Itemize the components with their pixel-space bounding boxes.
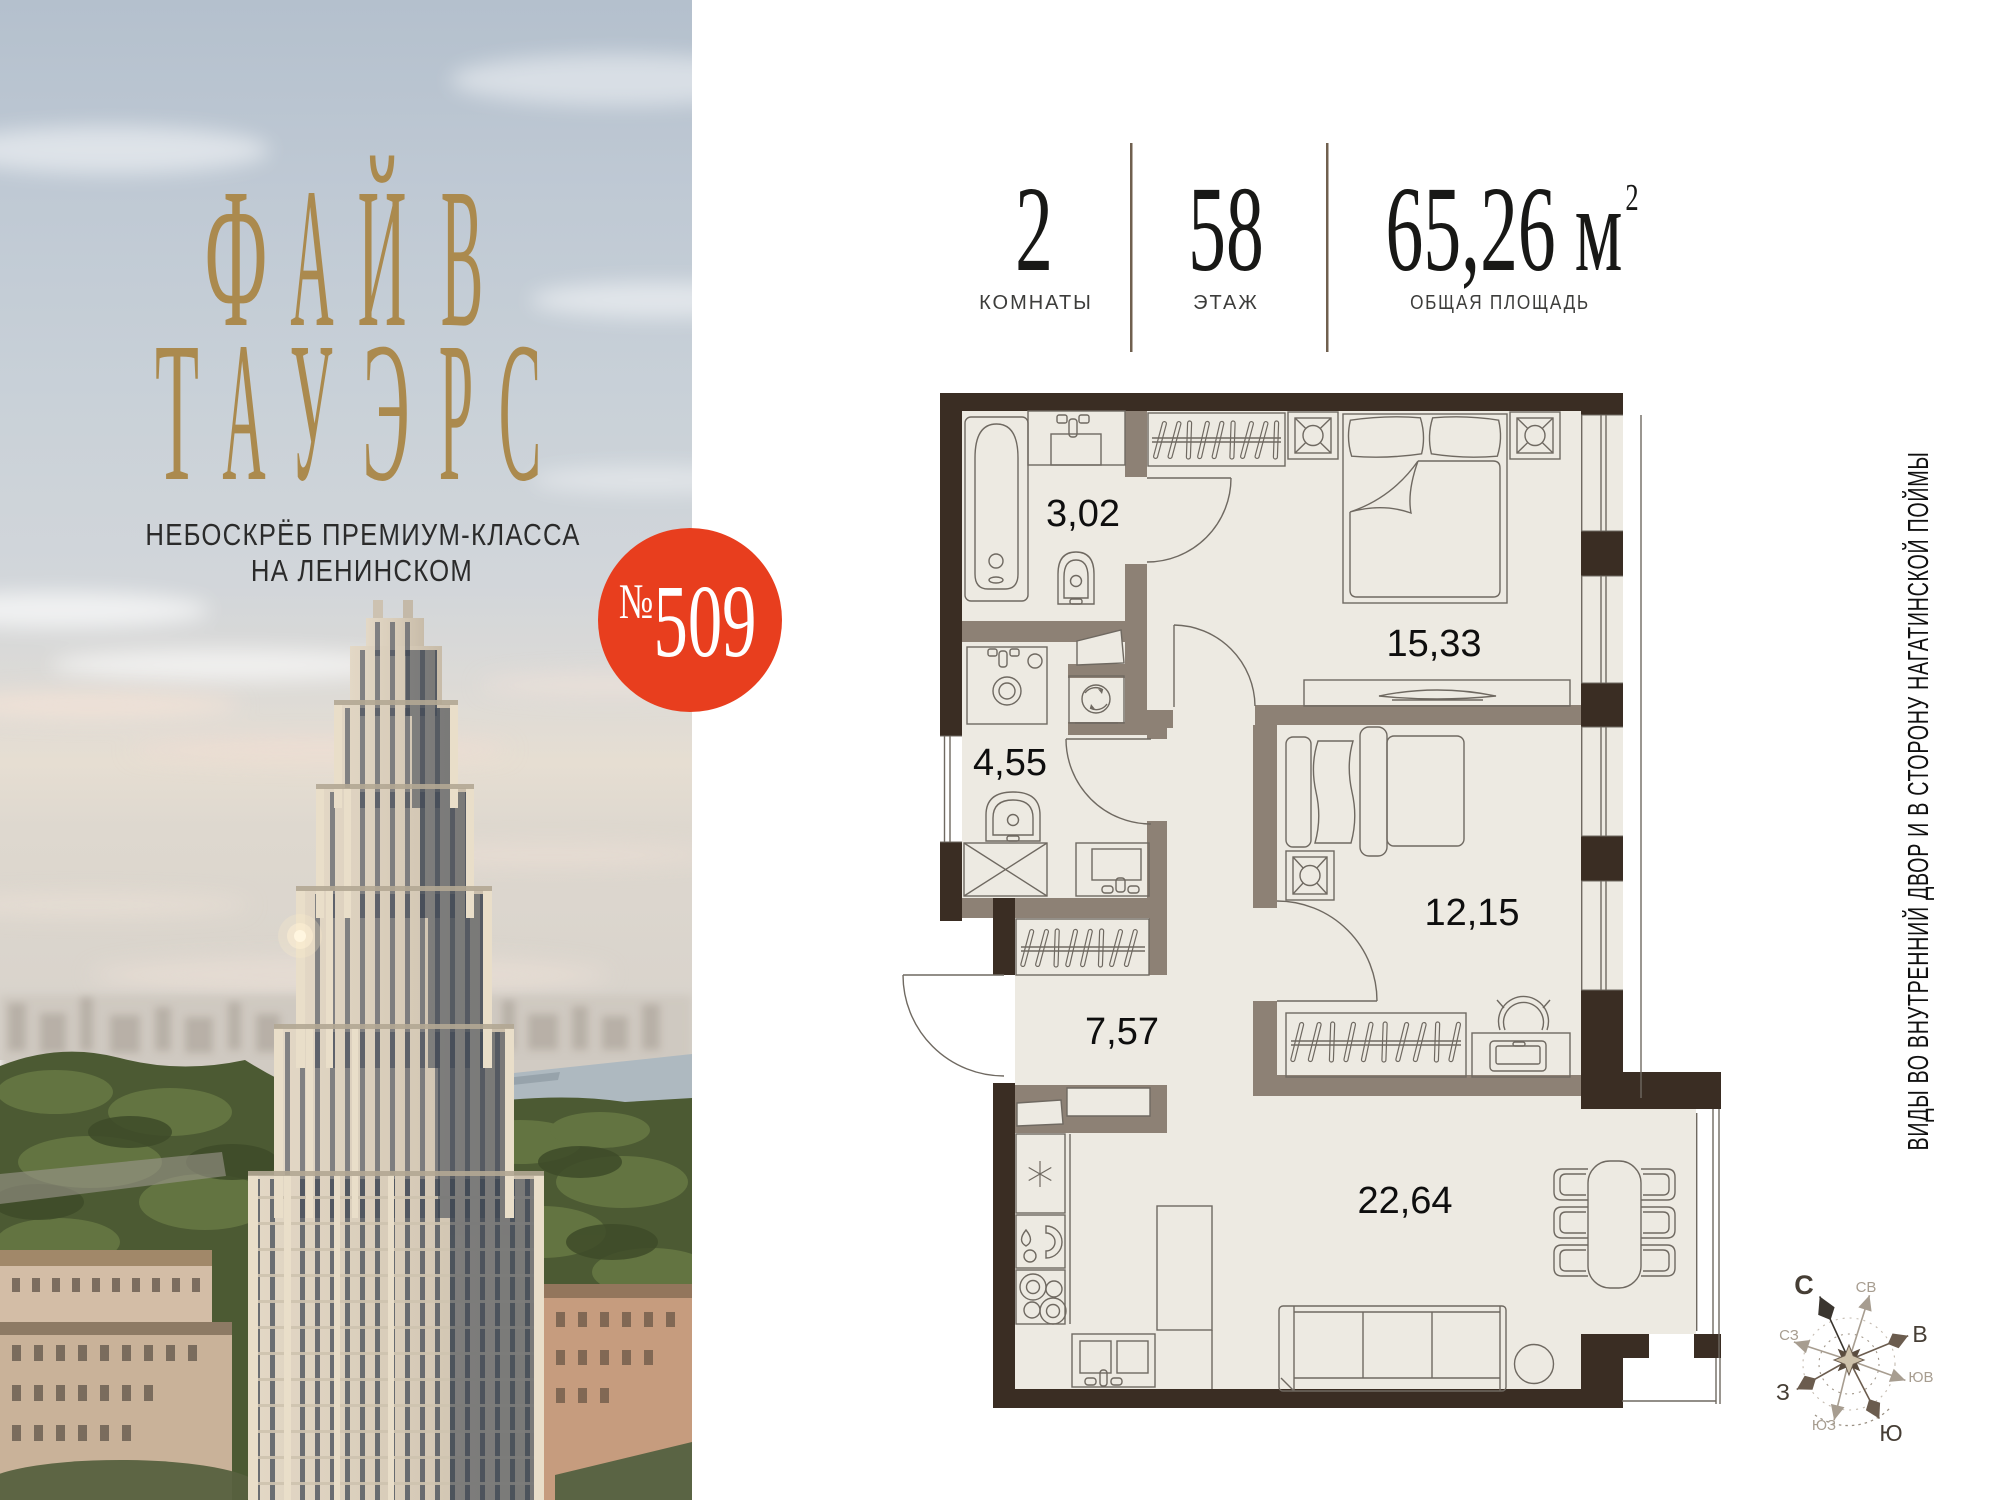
svg-text:ЮВ: ЮВ — [1908, 1369, 1933, 1386]
svg-text:15,33: 15,33 — [1386, 623, 1481, 665]
svg-text:З: З — [1776, 1379, 1790, 1405]
svg-text:ЮЗ: ЮЗ — [1812, 1417, 1836, 1434]
svg-text:22,64: 22,64 — [1357, 1180, 1452, 1222]
svg-text:4,55: 4,55 — [973, 742, 1047, 784]
svg-text:Ю: Ю — [1879, 1420, 1902, 1446]
svg-text:3,02: 3,02 — [1046, 493, 1120, 535]
svg-text:С: С — [1794, 1270, 1814, 1300]
svg-text:7,57: 7,57 — [1085, 1011, 1159, 1053]
svg-text:12,15: 12,15 — [1424, 892, 1519, 934]
svg-text:СВ: СВ — [1856, 1279, 1877, 1296]
svg-text:СЗ: СЗ — [1779, 1327, 1799, 1344]
svg-text:В: В — [1912, 1321, 1927, 1347]
